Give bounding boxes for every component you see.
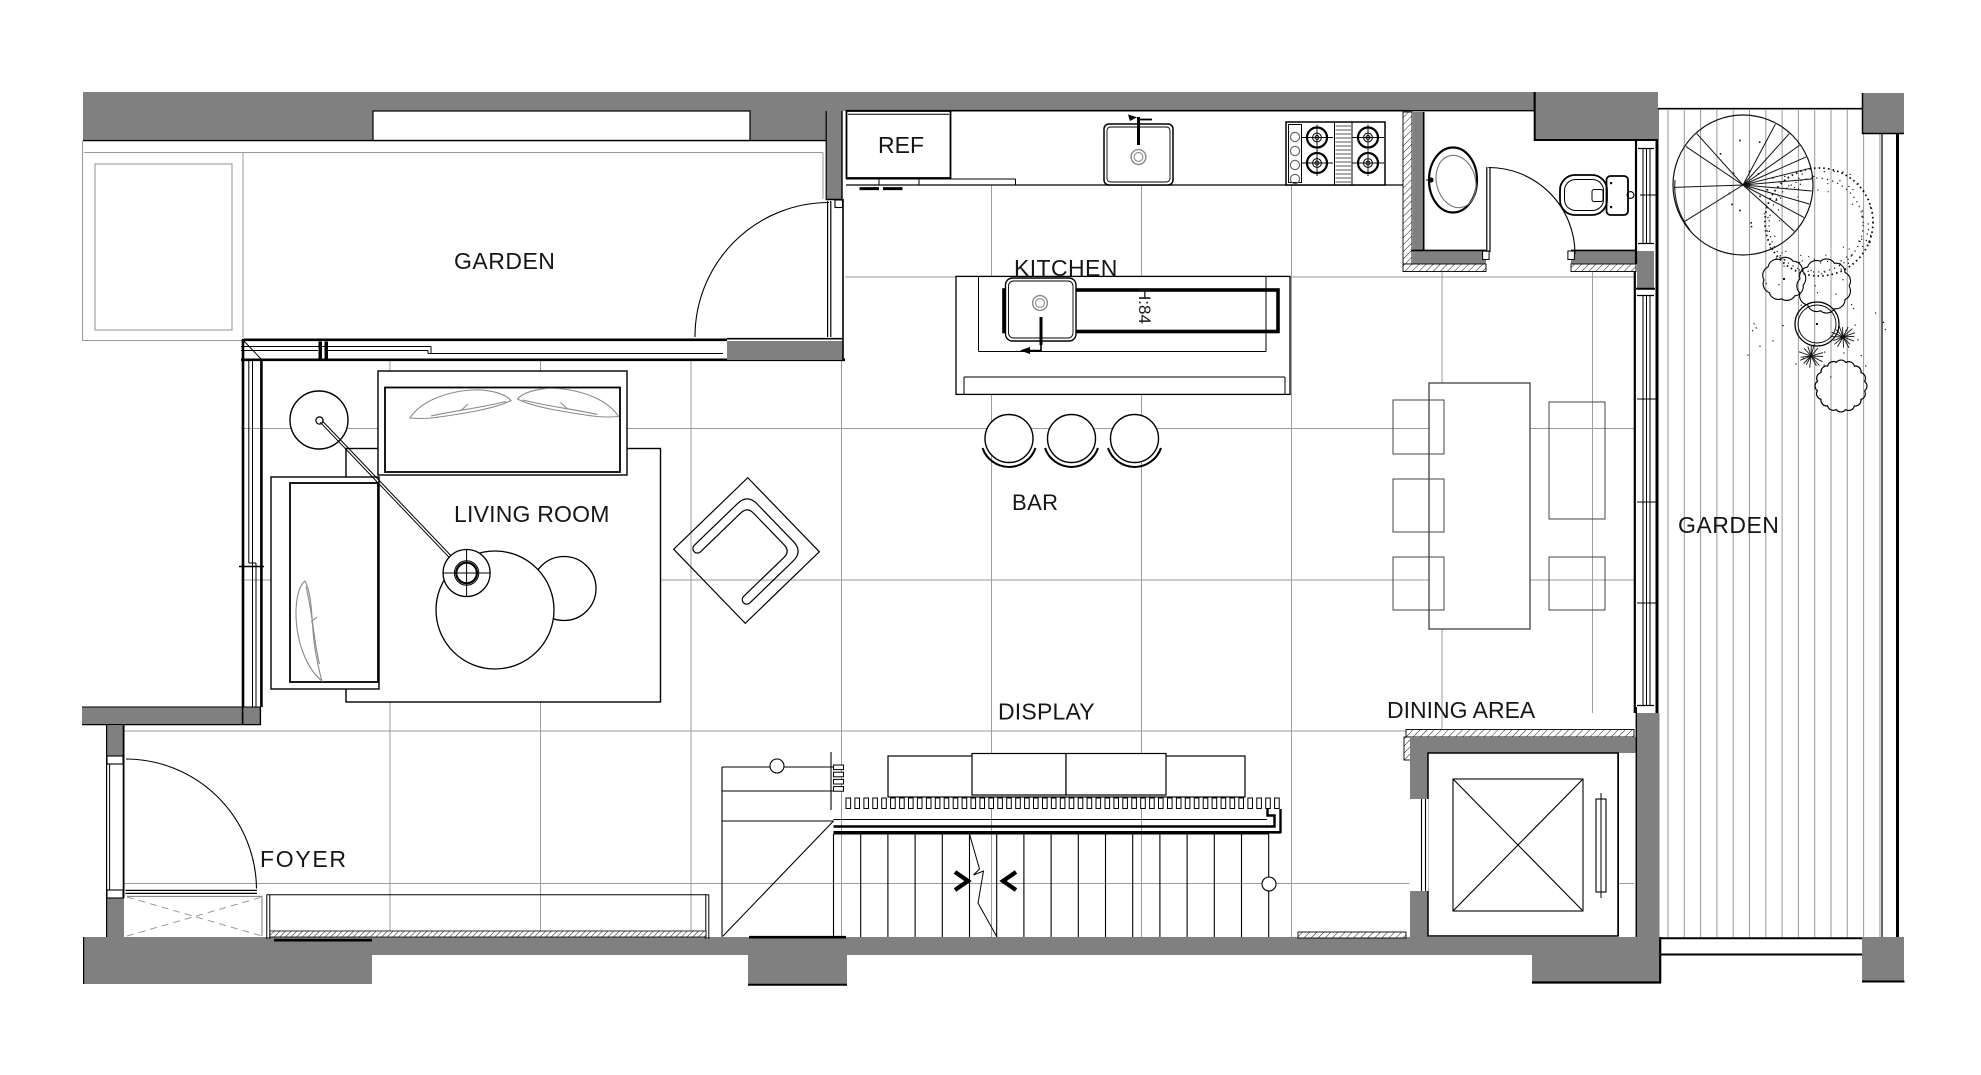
svg-text:GARDEN: GARDEN [454, 248, 555, 274]
svg-text:FOYER: FOYER [260, 846, 348, 872]
svg-text:GARDEN: GARDEN [1678, 512, 1779, 538]
svg-text:REF: REF [878, 132, 924, 158]
svg-text:DISPLAY: DISPLAY [998, 699, 1095, 725]
svg-text:LIVING ROOM: LIVING ROOM [454, 501, 610, 527]
svg-text:DINING AREA: DINING AREA [1387, 697, 1536, 723]
svg-text:BAR: BAR [1012, 490, 1058, 515]
svg-text:H:84: H:84 [1135, 288, 1154, 324]
svg-text:KITCHEN: KITCHEN [1014, 255, 1118, 281]
